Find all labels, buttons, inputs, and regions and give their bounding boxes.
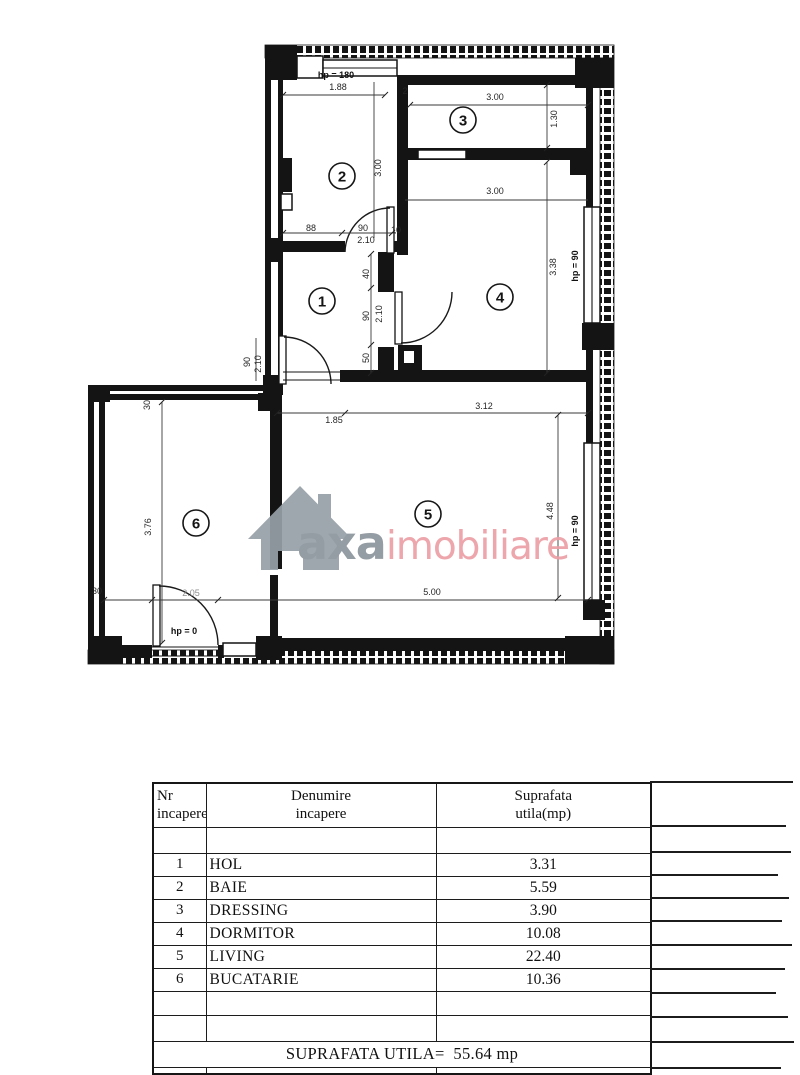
table-cell-nr: 2 bbox=[153, 876, 206, 899]
total-row: SUPRAFATA UTILA= 55.64 mp bbox=[153, 1041, 651, 1067]
dimension-label: 1.30 bbox=[549, 110, 559, 128]
room-schedule-table: Nr incapere Denumire incapere Suprafata … bbox=[152, 782, 652, 1075]
dimension-label: 90 bbox=[242, 357, 252, 367]
dimension-label: 3.12 bbox=[475, 401, 493, 411]
room-number: 1 bbox=[318, 294, 326, 311]
dimension-label: 2.10 bbox=[253, 355, 263, 373]
dimension-label: 2.10 bbox=[374, 305, 384, 323]
table-cell-ar: 5.59 bbox=[436, 876, 651, 899]
table-cell-ar: 3.31 bbox=[436, 853, 651, 876]
table-cell-nm: LIVING bbox=[206, 945, 436, 968]
table-cell-ar: 10.36 bbox=[436, 968, 651, 991]
doors bbox=[153, 207, 452, 646]
table-cell-ar: 10.08 bbox=[436, 922, 651, 945]
table-cell-nm: BAIE bbox=[206, 876, 436, 899]
table-cell-nm: HOL bbox=[206, 853, 436, 876]
table-cell-nr: 3 bbox=[153, 899, 206, 922]
table-cell-nr: 4 bbox=[153, 922, 206, 945]
spacer-row bbox=[153, 827, 651, 853]
dimension-label: 40 bbox=[361, 269, 371, 279]
table-cell-nm: DRESSING bbox=[206, 899, 436, 922]
dimension-label: 2 bbox=[402, 86, 407, 96]
header-denumire-incapere: Denumire incapere bbox=[206, 783, 436, 827]
header-nr-incapere: Nr incapere bbox=[153, 783, 206, 827]
room-number: 5 bbox=[424, 507, 432, 524]
table-row: 5LIVING22.40 bbox=[153, 945, 651, 968]
dimension-label: 30 bbox=[92, 586, 102, 596]
room-number: 4 bbox=[496, 290, 505, 307]
table-row: 1HOL3.31 bbox=[153, 853, 651, 876]
dimension-label: 2.10 bbox=[357, 235, 375, 245]
dimension-label: 1.85 bbox=[325, 415, 343, 425]
dimension-label: 3.00 bbox=[486, 92, 504, 102]
dimension-label: 88 bbox=[306, 223, 316, 233]
room-number: 3 bbox=[459, 113, 467, 130]
dimension-label: 5.00 bbox=[423, 587, 441, 597]
total-value: 55.64 mp bbox=[453, 1044, 518, 1063]
room-number: 6 bbox=[192, 516, 200, 533]
room-numbers: 123456 bbox=[183, 107, 513, 536]
watermark-brand-text: axa bbox=[297, 516, 386, 570]
exterior-wall-hatching bbox=[88, 45, 614, 664]
table-cell-nr: 1 bbox=[153, 853, 206, 876]
dimension-label: 3.38 bbox=[548, 258, 558, 276]
dimension-label: hp = 90 bbox=[570, 250, 580, 281]
watermark: axa imobiliare bbox=[248, 486, 569, 570]
scanned-floorplan-page: axa imobiliare 123456 hp = 1801.8823.001… bbox=[0, 0, 800, 1075]
dimension-label: hp = 90 bbox=[570, 515, 580, 546]
dimension-label: 3.00 bbox=[373, 159, 383, 177]
table-cell-ar: 3.90 bbox=[436, 899, 651, 922]
dimension-label: 1.88 bbox=[329, 82, 347, 92]
dimension-label: 3.76 bbox=[143, 518, 153, 536]
dimension-label: 2.05 bbox=[182, 588, 200, 598]
empty-row bbox=[153, 1015, 651, 1041]
dimension-label: hp = 180 bbox=[318, 70, 354, 80]
dimension-label: hp = 0 bbox=[171, 626, 197, 636]
room-number: 2 bbox=[338, 169, 346, 186]
table-cell-nm: DORMITOR bbox=[206, 922, 436, 945]
cutoff-row bbox=[153, 1067, 651, 1074]
dimension-label: 50 bbox=[361, 353, 371, 363]
table-body: 1HOL3.312BAIE5.593DRESSING3.904DORMITOR1… bbox=[153, 853, 651, 991]
table-cell-nr: 5 bbox=[153, 945, 206, 968]
empty-row bbox=[153, 991, 651, 1015]
watermark-suffix-text: imobiliare bbox=[386, 524, 569, 569]
dimension-label: 3.00 bbox=[486, 186, 504, 196]
table-cell-ar: 22.40 bbox=[436, 945, 651, 968]
table-header-row: Nr incapere Denumire incapere Suprafata … bbox=[153, 783, 651, 827]
table-cell-nr: 6 bbox=[153, 968, 206, 991]
header-suprafata-utila: Suprafata utila(mp) bbox=[436, 783, 651, 827]
table-cell-nm: BUCATARIE bbox=[206, 968, 436, 991]
dimension-label: 90 bbox=[358, 223, 368, 233]
dimension-label: 10 bbox=[391, 225, 401, 235]
table-row: 3DRESSING3.90 bbox=[153, 899, 651, 922]
dimension-label: 90 bbox=[361, 311, 371, 321]
table-row: 2BAIE5.59 bbox=[153, 876, 651, 899]
total-label: SUPRAFATA UTILA= bbox=[286, 1044, 445, 1063]
table-row: 4DORMITOR10.08 bbox=[153, 922, 651, 945]
table-row: 6BUCATARIE10.36 bbox=[153, 968, 651, 991]
floor-plan: axa imobiliare 123456 hp = 1801.8823.001… bbox=[0, 0, 800, 700]
dimension-label: 4.48 bbox=[545, 502, 555, 520]
dimension-label: 30 bbox=[142, 400, 152, 410]
walls bbox=[88, 45, 614, 664]
